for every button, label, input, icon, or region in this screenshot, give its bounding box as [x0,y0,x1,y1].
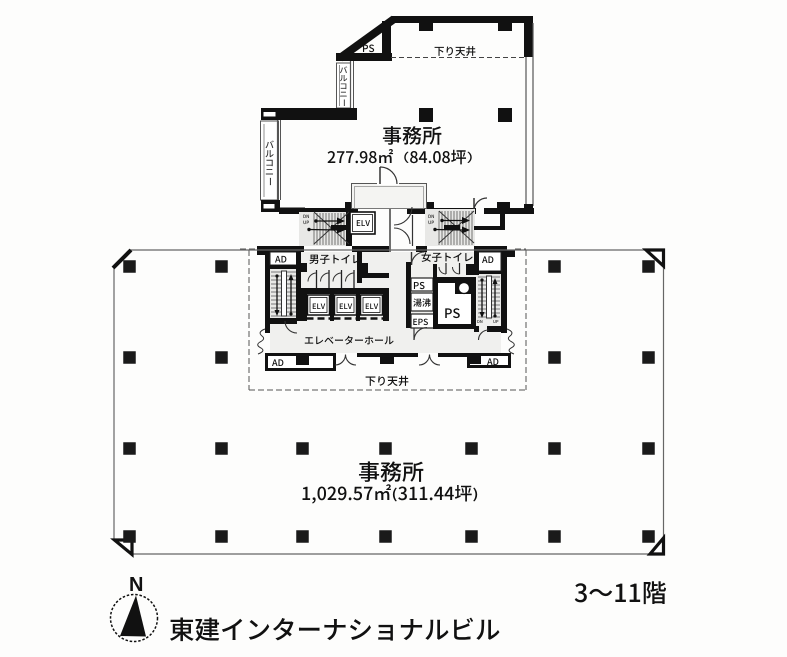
svg-text:N: N [129,574,143,596]
